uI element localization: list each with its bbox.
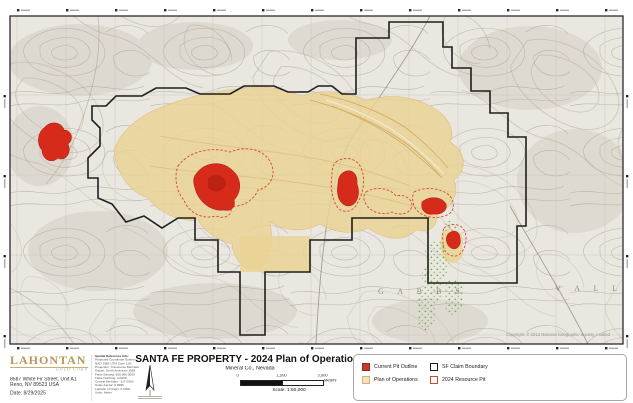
resource-pit-swatch xyxy=(430,376,438,384)
scalebar-end: 3,000 xyxy=(317,374,327,378)
plan-of-operations-swatch xyxy=(362,376,370,384)
logo-tagline: GOLD CORP xyxy=(40,368,88,372)
legend: Current Pit Outline Plan of Operations S… xyxy=(353,354,627,401)
map-canvas: G A B B S V A L L E Y Copyright: © 2013 … xyxy=(0,0,633,352)
title-strip: LAHONTAN GOLD CORP 8587 White Fir Street… xyxy=(0,352,633,403)
map-subtitle: Mineral Co., Nevada xyxy=(140,366,360,371)
current-pit-swatch xyxy=(362,363,370,371)
logo-wordmark: LAHONTAN xyxy=(10,354,88,366)
legend-item-current-pit: Current Pit Outline xyxy=(362,362,423,371)
map-title: SANTA FE PROPERTY - 2024 Plan of Operati… xyxy=(128,354,372,365)
valley-label: V A L L E Y xyxy=(555,284,633,293)
legend-item-plan-of-operations: Plan of Operations xyxy=(362,375,424,384)
scalebar-mid: 1,500 xyxy=(276,374,286,378)
legend-label: Plan of Operations xyxy=(374,377,418,382)
legend-item-claim-boundary: SF Claim Boundary xyxy=(430,362,494,371)
company-logo: LAHONTAN GOLD CORP 8587 White Fir Street… xyxy=(10,354,88,401)
legend-label: Current Pit Outline xyxy=(374,364,417,369)
claim-boundary-swatch xyxy=(430,363,438,371)
legend-item-resource-pit: 2024 Resource Pit xyxy=(430,375,491,384)
north-arrow-caption xyxy=(138,396,162,399)
scalebar-graphic xyxy=(240,380,324,386)
basemap-credit: Copyright: © 2013 National Geographic So… xyxy=(506,332,610,337)
range-label: G A B B S xyxy=(378,287,466,296)
company-address: 8587 White Fir Street, Unit A1 Reno, NV … xyxy=(10,377,87,397)
address-line2: Reno, NV 89523 USA xyxy=(10,383,87,389)
map-document: G A B B S V A L L E Y Copyright: © 2013 … xyxy=(0,0,633,403)
legend-label: 2024 Resource Pit xyxy=(442,377,485,382)
scalebar-units: Meters xyxy=(324,379,336,383)
legend-label: SF Claim Boundary xyxy=(442,364,488,369)
scale-text: Scale: 1:50,000 xyxy=(229,388,349,393)
scalebar-zero: 0 xyxy=(237,374,239,378)
map-date: Date: 8/29/2025 xyxy=(10,391,87,397)
